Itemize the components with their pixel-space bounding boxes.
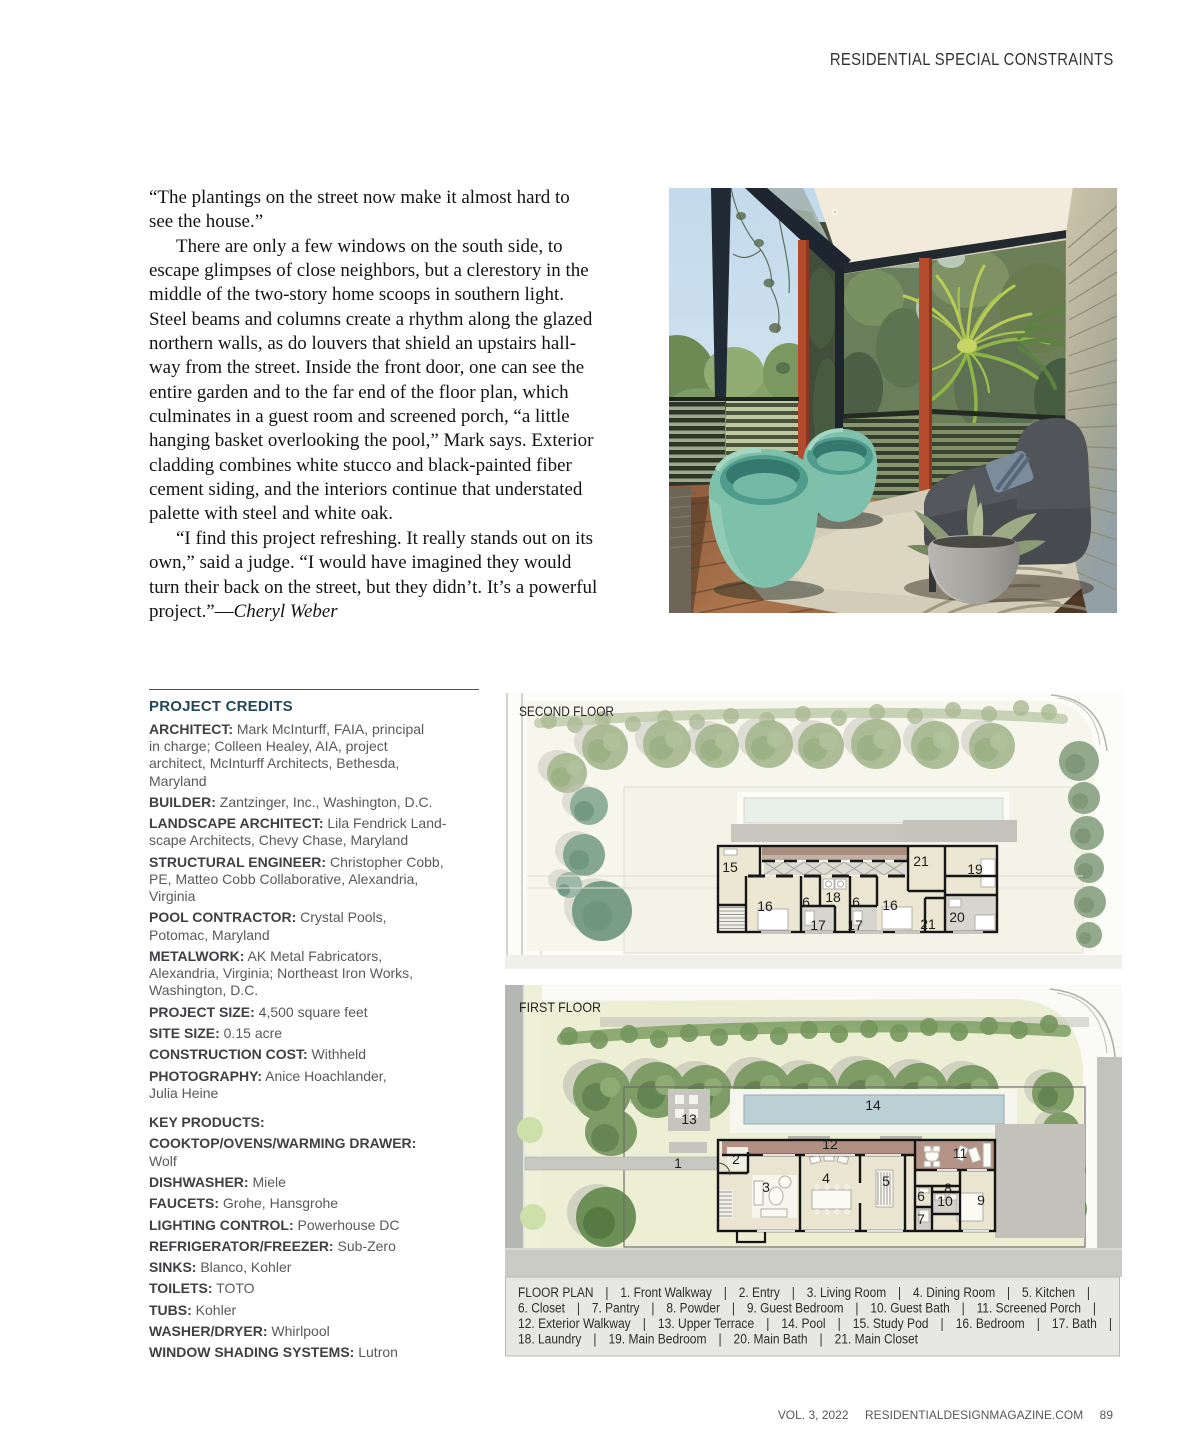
svg-text:21: 21: [920, 916, 936, 932]
svg-text:1: 1: [674, 1155, 682, 1171]
svg-text:12: 12: [822, 1136, 838, 1152]
svg-text:6. Closet | 7. Pantry | 8. Pow: 6. Closet | 7. Pantry | 8. Powder | 9. G…: [518, 1301, 1096, 1316]
svg-text:FIRST FLOOR: FIRST FLOOR: [519, 999, 601, 1015]
svg-text:16: 16: [882, 897, 898, 913]
svg-text:4: 4: [822, 1170, 830, 1186]
svg-text:3: 3: [762, 1179, 770, 1195]
svg-text:18: 18: [825, 889, 841, 905]
svg-text:9: 9: [977, 1192, 985, 1208]
svg-text:5: 5: [882, 1173, 890, 1189]
svg-text:18. Laundry | 19. Main Bedroom: 18. Laundry | 19. Main Bedroom | 20. Mai…: [518, 1332, 918, 1347]
svg-text:16: 16: [757, 898, 773, 914]
svg-text:FLOOR PLAN | 1. Front Walkway: FLOOR PLAN | 1. Front Walkway | 2. Entry…: [518, 1285, 1090, 1300]
svg-text:15: 15: [722, 859, 738, 875]
svg-text:12. Exterior Walkway | 13. Upp: 12. Exterior Walkway | 13. Upper Terrace…: [518, 1316, 1112, 1331]
svg-text:20: 20: [949, 909, 965, 925]
svg-text:19: 19: [967, 861, 983, 877]
svg-text:10: 10: [937, 1193, 953, 1209]
svg-text:17: 17: [810, 917, 826, 933]
svg-text:14: 14: [865, 1097, 881, 1113]
svg-text:11: 11: [953, 1145, 968, 1161]
svg-text:2: 2: [732, 1151, 740, 1167]
svg-text:17: 17: [847, 917, 863, 933]
svg-text:21: 21: [913, 853, 929, 869]
svg-text:6: 6: [802, 894, 810, 910]
svg-text:13: 13: [681, 1111, 697, 1127]
svg-text:SECOND FLOOR: SECOND FLOOR: [519, 703, 614, 719]
svg-text:6: 6: [852, 894, 860, 910]
svg-text:6: 6: [917, 1188, 925, 1204]
svg-text:7: 7: [917, 1211, 925, 1227]
